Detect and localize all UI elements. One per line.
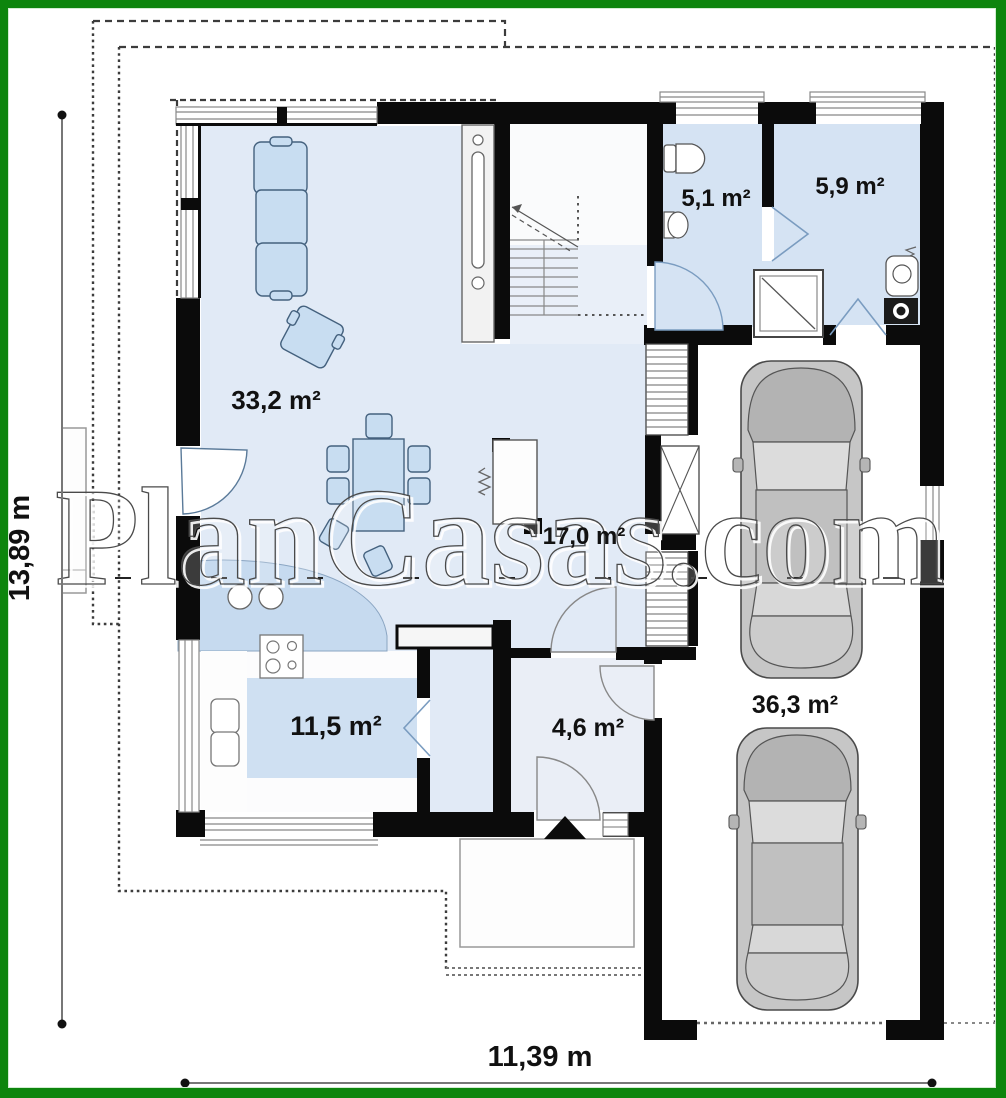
svg-text:33,2 m²: 33,2 m² [231,385,321,415]
svg-text:5,9 m²: 5,9 m² [815,173,884,200]
svg-text:4,6 m²: 4,6 m² [552,714,624,742]
svg-text:17,0 m²: 17,0 m² [543,523,626,550]
svg-text:PlanCasas.com: PlanCasas.com [55,460,945,615]
svg-text:5,1 m²: 5,1 m² [681,185,750,212]
svg-text:36,3 m²: 36,3 m² [752,691,838,719]
svg-text:11,39 m: 11,39 m [488,1041,593,1073]
svg-text:11,5 m²: 11,5 m² [290,711,382,741]
